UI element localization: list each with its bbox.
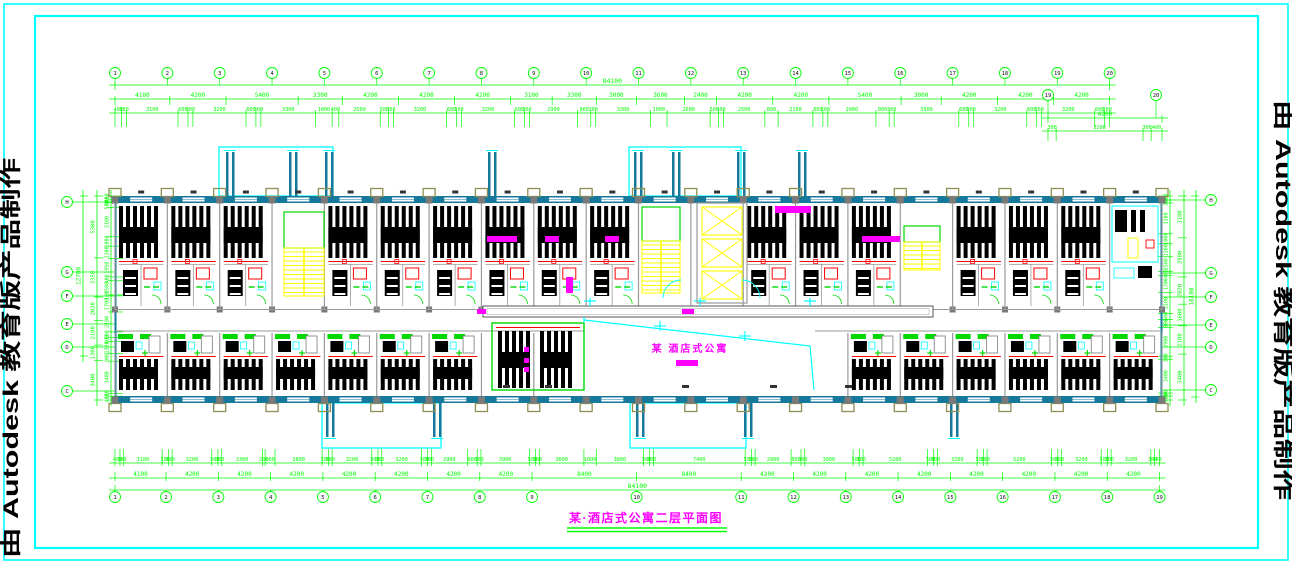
guest-room	[800, 206, 844, 306]
guest-room	[328, 206, 372, 306]
svg-text:300: 300	[326, 457, 335, 463]
svg-text:3100: 3100	[524, 92, 539, 99]
svg-text:12: 12	[688, 71, 695, 77]
svg-text:2500: 2500	[738, 107, 751, 113]
svg-text:2020: 2020	[91, 302, 97, 315]
svg-text:6: 6	[375, 71, 378, 77]
svg-text:3400: 3400	[105, 371, 111, 383]
svg-text:5: 5	[323, 71, 326, 77]
svg-text:17: 17	[1052, 495, 1059, 501]
svg-text:4200: 4200	[185, 471, 200, 478]
svg-text:7: 7	[426, 495, 429, 501]
svg-text:5400: 5400	[255, 92, 270, 99]
svg-text:G: G	[1209, 271, 1212, 277]
svg-text:3200: 3200	[395, 457, 408, 463]
svg-text:300: 300	[522, 107, 531, 113]
guest-room	[432, 334, 477, 390]
svg-text:2900: 2900	[767, 457, 780, 463]
svg-text:3800: 3800	[292, 457, 305, 463]
svg-text:4200: 4200	[1074, 92, 1089, 99]
svg-text:3600: 3600	[555, 457, 568, 463]
svg-text:3300: 3300	[567, 92, 582, 99]
svg-text:800: 800	[767, 107, 776, 113]
cad-sheet: 由 Autodesk 教育版产品制作 由 Autodesk 教育版产品制作 某 …	[0, 0, 1292, 564]
svg-text:4200: 4200	[499, 471, 514, 478]
svg-text:2900: 2900	[1178, 251, 1184, 264]
svg-text:300: 300	[981, 457, 990, 463]
svg-text:6: 6	[374, 495, 377, 501]
svg-text:300: 300	[425, 457, 434, 463]
svg-text:4200: 4200	[342, 471, 357, 478]
svg-text:3200: 3200	[346, 457, 359, 463]
svg-text:3200: 3200	[1125, 457, 1138, 463]
svg-text:3900: 3900	[920, 107, 933, 113]
svg-text:2400: 2400	[693, 92, 708, 99]
svg-text:4200: 4200	[1074, 471, 1089, 478]
svg-text:3400: 3400	[1178, 370, 1184, 383]
svg-text:3200: 3200	[1075, 457, 1088, 463]
svg-text:84100: 84100	[627, 482, 647, 490]
svg-text:1000: 1000	[318, 107, 331, 113]
svg-text:800: 800	[105, 353, 111, 362]
guest-room	[851, 334, 896, 390]
svg-text:300: 300	[931, 457, 940, 463]
guest-room	[327, 334, 372, 390]
guest-room	[170, 334, 215, 390]
svg-text:300: 300	[186, 107, 195, 113]
svg-text:300: 300	[589, 107, 598, 113]
svg-text:3200: 3200	[414, 107, 427, 113]
guest-room	[747, 206, 791, 306]
svg-text:1700: 1700	[105, 298, 111, 310]
dimension-grid-top-right: 192042003003200300400	[1042, 90, 1168, 142]
svg-text:1000: 1000	[105, 235, 111, 247]
svg-text:8: 8	[478, 495, 481, 501]
svg-text:10: 10	[583, 71, 590, 77]
guest-room	[956, 334, 1001, 390]
svg-text:300: 300	[749, 457, 758, 463]
bottom-room-band	[118, 323, 1158, 390]
svg-text:300: 300	[1047, 125, 1056, 131]
svg-text:2900: 2900	[547, 107, 560, 113]
svg-text:3000: 3000	[609, 92, 624, 99]
svg-text:300: 300	[821, 107, 830, 113]
svg-text:1300: 1300	[91, 346, 97, 359]
dimension-grid-right: HGFEDC4003003100100013001500400170021006…	[1158, 190, 1217, 406]
svg-text:15: 15	[845, 71, 852, 77]
svg-text:300: 300	[166, 457, 175, 463]
svg-text:4200: 4200	[865, 471, 880, 478]
guest-room	[1008, 334, 1053, 390]
svg-text:2: 2	[164, 495, 167, 501]
guest-room	[957, 206, 1001, 306]
floor-plan-canvas[interactable]: 由 Autodesk 教育版产品制作 由 Autodesk 教育版产品制作 某 …	[0, 0, 1292, 564]
svg-text:300: 300	[1035, 107, 1044, 113]
svg-text:1300: 1300	[105, 341, 111, 353]
svg-text:3200: 3200	[1062, 107, 1075, 113]
svg-text:16: 16	[897, 71, 904, 77]
svg-text:5200: 5200	[1013, 457, 1026, 463]
svg-text:1000: 1000	[1164, 233, 1170, 245]
svg-text:5400: 5400	[858, 92, 873, 99]
svg-text:F: F	[65, 294, 68, 300]
svg-text:4200: 4200	[475, 92, 490, 99]
svg-text:13: 13	[740, 71, 747, 77]
svg-text:5300: 5300	[91, 220, 97, 233]
svg-text:4200: 4200	[760, 471, 775, 478]
svg-text:3350: 3350	[91, 271, 97, 284]
svg-text:3400: 3400	[91, 374, 97, 387]
svg-text:3300: 3300	[313, 92, 328, 99]
svg-text:9: 9	[532, 71, 535, 77]
svg-text:3000: 3000	[914, 92, 929, 99]
svg-text:2100: 2100	[105, 316, 111, 328]
svg-text:19: 19	[1045, 93, 1052, 99]
svg-text:4200: 4200	[962, 92, 977, 99]
guest-room	[224, 206, 268, 306]
svg-text:C: C	[1209, 388, 1212, 394]
svg-text:C: C	[65, 389, 68, 395]
svg-text:1600: 1600	[1178, 308, 1184, 321]
drawing-title: 某·酒店式公寓二层平面图	[569, 510, 723, 525]
svg-text:9: 9	[530, 495, 533, 501]
svg-text:14: 14	[895, 495, 902, 501]
svg-text:7: 7	[427, 71, 430, 77]
svg-text:4200: 4200	[917, 471, 932, 478]
svg-text:8400: 8400	[577, 471, 592, 478]
svg-text:84100: 84100	[603, 77, 623, 85]
svg-text:11: 11	[738, 495, 745, 501]
guest-room	[1061, 206, 1105, 306]
guest-room	[852, 206, 896, 306]
svg-text:16: 16	[999, 495, 1006, 501]
guest-room	[118, 334, 163, 390]
svg-text:400: 400	[1152, 457, 1161, 463]
svg-text:3200: 3200	[213, 107, 226, 113]
svg-text:500: 500	[105, 200, 111, 209]
double-room	[492, 323, 584, 390]
svg-text:E: E	[1209, 323, 1212, 329]
guest-room	[381, 206, 425, 306]
svg-text:20: 20	[1106, 71, 1113, 77]
svg-text:3800: 3800	[614, 457, 627, 463]
svg-text:H: H	[1209, 198, 1212, 204]
svg-text:800: 800	[265, 457, 274, 463]
svg-text:3200: 3200	[186, 457, 199, 463]
svg-text:4100: 4100	[133, 471, 148, 478]
svg-text:3100: 3100	[146, 107, 159, 113]
svg-text:3100: 3100	[1178, 210, 1184, 223]
svg-text:4200: 4200	[1022, 471, 1037, 478]
svg-text:300: 300	[215, 457, 224, 463]
svg-text:F: F	[1209, 295, 1212, 301]
svg-text:D: D	[1209, 345, 1212, 351]
watermark-left: 由 Autodesk 教育版产品制作	[0, 158, 23, 558]
watermark-right: 由 Autodesk 教育版产品制作	[1271, 100, 1292, 500]
svg-text:3400: 3400	[1164, 370, 1170, 382]
svg-text:4200: 4200	[419, 92, 434, 99]
svg-text:16100: 16100	[1189, 287, 1196, 305]
svg-text:300: 300	[386, 107, 395, 113]
svg-text:300: 300	[254, 107, 263, 113]
svg-text:3: 3	[217, 495, 220, 501]
svg-text:19: 19	[1156, 495, 1163, 501]
svg-text:2600: 2600	[682, 107, 695, 113]
guest-room	[223, 334, 268, 390]
svg-text:8400: 8400	[682, 471, 697, 478]
svg-text:4200: 4200	[737, 92, 752, 99]
svg-text:4200: 4200	[191, 92, 206, 99]
svg-text:4200: 4200	[290, 471, 305, 478]
svg-text:4200: 4200	[363, 92, 378, 99]
dimension-grid-bottom: 4003003100500300320050030033002008003800…	[109, 449, 1166, 503]
svg-text:1300: 1300	[1164, 244, 1170, 256]
svg-text:5200: 5200	[889, 457, 902, 463]
guest-room	[380, 334, 425, 390]
elevator-core	[697, 203, 747, 303]
svg-text:4200: 4200	[446, 471, 461, 478]
svg-text:4200: 4200	[237, 471, 252, 478]
svg-text:14: 14	[792, 71, 799, 77]
svg-text:D: D	[65, 345, 68, 351]
svg-text:8: 8	[480, 71, 483, 77]
svg-text:4200: 4200	[1126, 471, 1141, 478]
svg-text:300: 300	[1164, 353, 1170, 362]
svg-text:17: 17	[949, 71, 956, 77]
svg-text:1950: 1950	[105, 262, 111, 274]
svg-text:2900: 2900	[1164, 336, 1170, 348]
svg-text:15: 15	[947, 495, 954, 501]
svg-text:4200: 4200	[794, 92, 809, 99]
svg-text:12: 12	[790, 495, 797, 501]
svg-text:2500: 2500	[353, 107, 366, 113]
svg-text:2900: 2900	[443, 457, 456, 463]
svg-text:300: 300	[119, 107, 128, 113]
svg-text:3300: 3300	[282, 107, 295, 113]
svg-text:3100: 3100	[137, 457, 150, 463]
svg-text:3900: 3900	[823, 457, 836, 463]
svg-text:1000: 1000	[652, 107, 665, 113]
svg-text:2100: 2100	[1178, 333, 1184, 346]
svg-text:1700: 1700	[1164, 278, 1170, 290]
svg-text:2020: 2020	[1178, 284, 1184, 297]
guest-room	[590, 206, 634, 306]
svg-text:300: 300	[1105, 457, 1114, 463]
end-unit	[1112, 206, 1158, 278]
svg-text:1300: 1300	[105, 246, 111, 258]
svg-text:7400: 7400	[693, 457, 706, 463]
svg-text:3200: 3200	[951, 457, 964, 463]
svg-text:5: 5	[321, 495, 324, 501]
svg-text:400: 400	[1164, 269, 1170, 278]
svg-text:300: 300	[117, 457, 126, 463]
svg-text:300: 300	[798, 457, 807, 463]
svg-text:2: 2	[166, 71, 169, 77]
svg-text:4200: 4200	[1098, 111, 1113, 118]
svg-text:300: 300	[533, 457, 542, 463]
svg-text:20: 20	[1153, 93, 1160, 99]
dimension-grid-top: 1234567891011121314151617181920841004100…	[109, 68, 1116, 128]
svg-text:300: 300	[375, 457, 384, 463]
guest-room	[171, 206, 215, 306]
svg-text:300: 300	[887, 107, 896, 113]
svg-text:3100: 3100	[1164, 212, 1170, 224]
svg-text:300: 300	[647, 457, 656, 463]
svg-text:10: 10	[633, 495, 640, 501]
svg-text:2100: 2100	[91, 326, 97, 339]
svg-text:11: 11	[635, 71, 642, 77]
svg-text:800: 800	[1164, 319, 1170, 328]
svg-text:18: 18	[1002, 71, 1009, 77]
svg-text:800: 800	[579, 107, 588, 113]
guest-room	[275, 334, 320, 390]
guest-room	[1009, 206, 1053, 306]
svg-text:3200: 3200	[1093, 125, 1106, 131]
guest-room	[485, 206, 529, 306]
svg-text:1: 1	[113, 71, 116, 77]
svg-text:300: 300	[856, 457, 865, 463]
svg-text:300: 300	[716, 107, 725, 113]
svg-text:E: E	[65, 322, 68, 328]
guest-room	[1113, 334, 1158, 390]
svg-text:3200: 3200	[482, 107, 495, 113]
guest-room	[1060, 334, 1105, 390]
svg-text:19: 19	[1054, 71, 1061, 77]
guest-room	[903, 334, 948, 390]
svg-text:G: G	[65, 270, 68, 276]
svg-text:300: 300	[474, 457, 483, 463]
svg-text:3100: 3100	[105, 216, 111, 228]
svg-text:2100: 2100	[789, 107, 802, 113]
guest-room	[538, 206, 582, 306]
svg-text:3300: 3300	[236, 457, 249, 463]
svg-text:3600: 3600	[653, 92, 668, 99]
lobby-room-label: 某 酒店式公寓	[652, 342, 729, 355]
svg-text:800: 800	[878, 107, 887, 113]
svg-text:300: 300	[1142, 125, 1151, 131]
svg-text:300: 300	[454, 107, 463, 113]
svg-text:400: 400	[105, 394, 111, 403]
svg-text:4200: 4200	[969, 471, 984, 478]
svg-text:4200: 4200	[812, 471, 827, 478]
svg-text:3: 3	[218, 71, 221, 77]
svg-text:13: 13	[842, 495, 849, 501]
svg-text:4200: 4200	[394, 471, 409, 478]
svg-text:1500: 1500	[1164, 258, 1170, 270]
svg-text:1: 1	[113, 495, 116, 501]
svg-text:300: 300	[967, 107, 976, 113]
guest-room	[119, 206, 163, 306]
svg-text:4200: 4200	[1018, 92, 1033, 99]
svg-text:4100: 4100	[135, 92, 150, 99]
dimension-grid-left: HGFEDC4003005003100100013001950400150010…	[62, 190, 124, 406]
svg-text:300: 300	[1055, 457, 1064, 463]
svg-text:3200: 3200	[994, 107, 1007, 113]
svg-text:3300: 3300	[617, 107, 630, 113]
svg-text:2900: 2900	[846, 107, 859, 113]
svg-text:400: 400	[1152, 125, 1161, 131]
svg-text:12700: 12700	[76, 267, 83, 285]
guest-room	[433, 206, 477, 306]
svg-text:3900: 3900	[499, 457, 512, 463]
svg-text:H: H	[65, 200, 68, 206]
svg-text:1000: 1000	[584, 457, 597, 463]
svg-text:18: 18	[1104, 495, 1111, 501]
